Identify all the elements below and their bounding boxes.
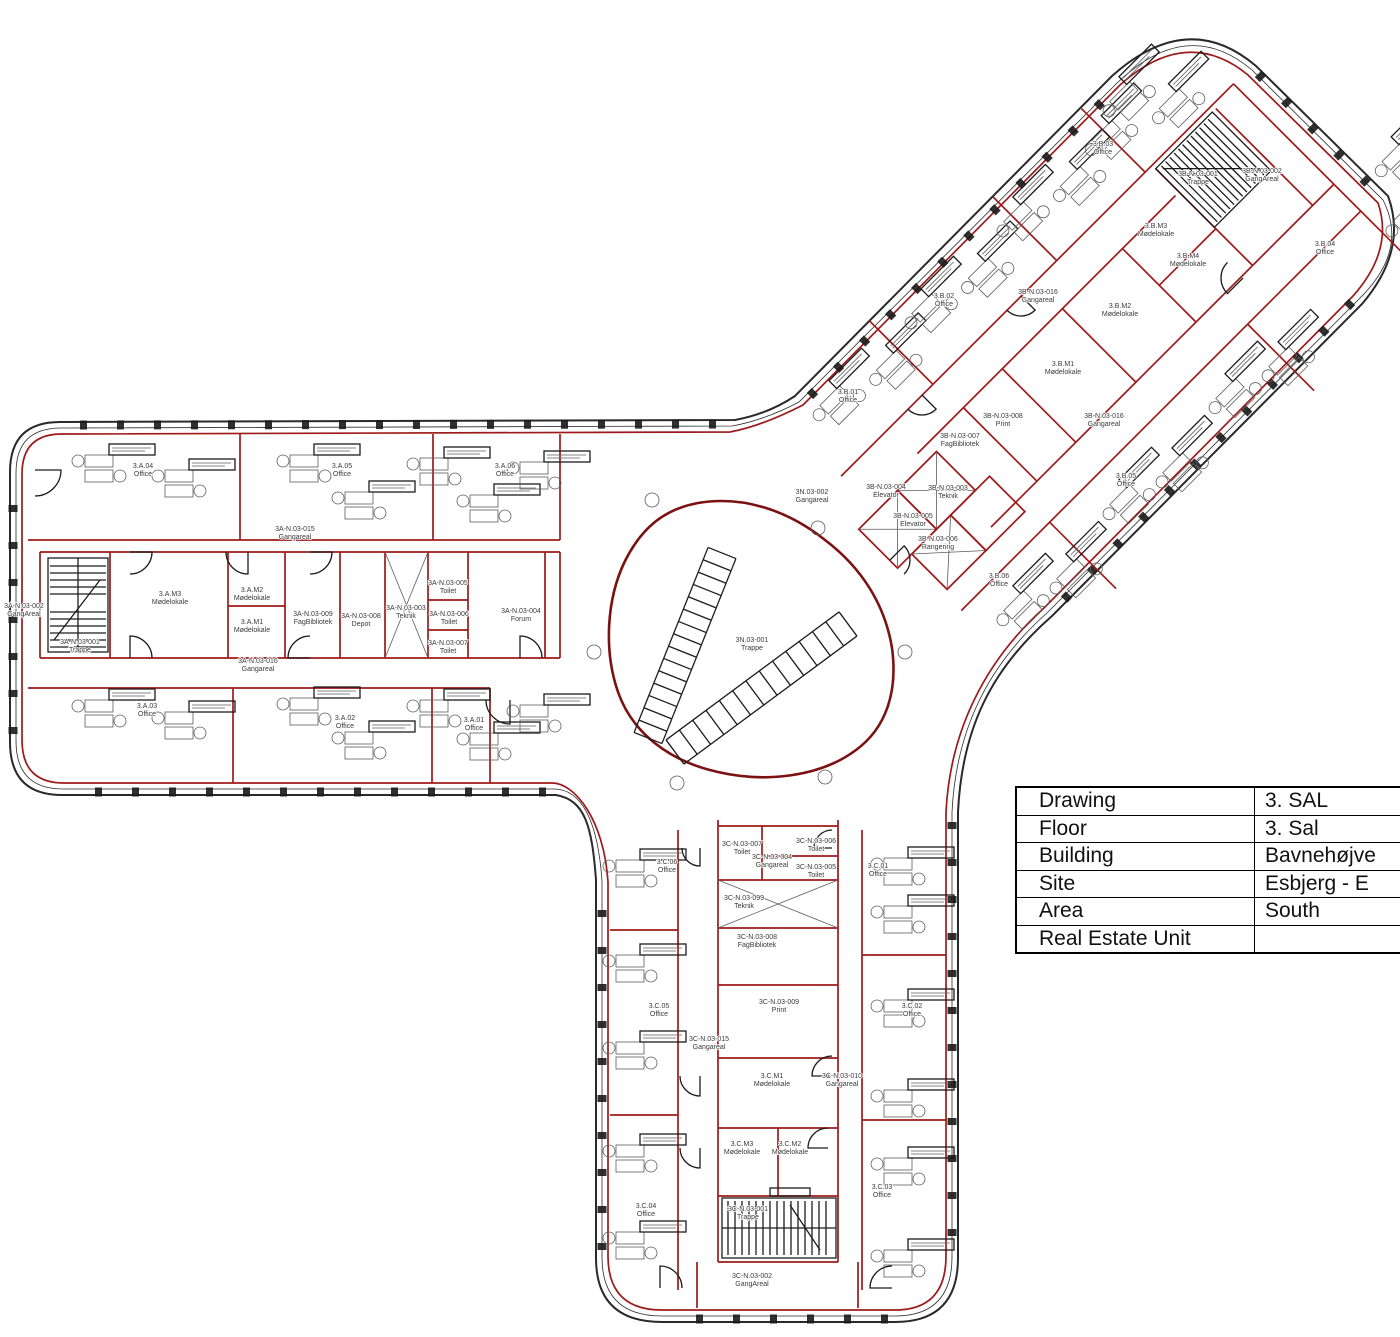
- desk: [616, 1145, 644, 1157]
- chair: [374, 507, 386, 519]
- desk: [884, 1105, 912, 1117]
- desk: [1269, 347, 1297, 375]
- floor-plan-canvas: 3.A.04Office3.A.05Office3.A.06Office3A-N…: [0, 0, 1400, 1337]
- chair: [811, 406, 828, 423]
- desk: [165, 712, 193, 724]
- equipment-tag: [1101, 83, 1141, 123]
- room-label: 3.C.M3Mødelokale: [724, 1141, 760, 1156]
- equipment-tag: [189, 459, 235, 470]
- desk: [968, 258, 996, 286]
- room-label: 3.B.06Office: [989, 573, 1009, 588]
- desk: [1060, 167, 1088, 195]
- chair: [871, 1158, 883, 1170]
- chair: [407, 700, 419, 712]
- desk-icon: [1365, 104, 1400, 190]
- title-block-row: AreaSouth: [1016, 898, 1400, 926]
- stair-landing: [770, 1188, 810, 1196]
- equipment-tag: [978, 221, 1018, 261]
- title-block-row: Drawing3. SAL: [1016, 787, 1400, 815]
- desk-icon: [871, 1239, 954, 1277]
- room-label: 3A-N.03-009FagBibliotek: [293, 611, 333, 626]
- desk-icon: [871, 1079, 954, 1117]
- desk: [887, 361, 915, 389]
- b-wing-wall: [1050, 522, 1116, 588]
- room-label: 3.A.M2Mødelokale: [234, 587, 270, 602]
- desk: [1004, 591, 1032, 619]
- chair: [867, 371, 884, 388]
- center-stair-icon: [839, 612, 857, 636]
- desk: [470, 748, 498, 760]
- chair: [194, 485, 206, 497]
- center-stair-icon: [759, 671, 777, 695]
- desk: [884, 873, 912, 885]
- chair: [1035, 592, 1052, 609]
- equipment-tag: [444, 689, 490, 700]
- chair: [603, 955, 615, 967]
- equipment-tag: [109, 689, 155, 700]
- door-arc-icon: [520, 636, 542, 658]
- desk: [85, 455, 113, 467]
- chair: [457, 733, 469, 745]
- door-arc-icon: [682, 848, 700, 866]
- chair: [913, 1105, 925, 1117]
- desk: [290, 698, 318, 710]
- title-block-row: SiteEsbjerg - E: [1016, 870, 1400, 898]
- building-outline: [10, 39, 1394, 1322]
- b-wing-wall: [841, 84, 1233, 476]
- center-stair-icon: [733, 691, 751, 715]
- chair: [457, 495, 469, 507]
- room-label: 3B-N.03-007FagBibliotek: [940, 433, 980, 448]
- chair: [407, 458, 419, 470]
- center-stair-icon: [644, 708, 672, 719]
- desk-icon: [603, 944, 686, 982]
- desk: [420, 473, 448, 485]
- chair: [871, 1250, 883, 1262]
- title-block-value-cell: Esbjerg - E: [1255, 870, 1400, 898]
- door-arc-icon: [35, 470, 61, 496]
- chair: [871, 1000, 883, 1012]
- equipment-tag: [109, 444, 155, 455]
- door-arc-icon: [680, 1148, 700, 1168]
- chair: [999, 260, 1016, 277]
- desk: [1057, 559, 1085, 587]
- room-label: 3.C.03Office: [872, 1184, 893, 1199]
- equipment-tag: [444, 447, 490, 458]
- room-label: 3.A.01Office: [464, 717, 484, 732]
- equipment-tag: [369, 721, 415, 732]
- room-label: 3A-N.03-006Toilet: [429, 611, 469, 626]
- room-label: 3C-N.03-004Gangareal: [752, 854, 792, 869]
- chair: [645, 1057, 657, 1069]
- chair: [449, 473, 461, 485]
- desk: [470, 733, 498, 745]
- center-stair-icon: [826, 622, 844, 646]
- desk-icon: [332, 481, 415, 519]
- desk: [470, 510, 498, 522]
- desk: [420, 715, 448, 727]
- room-label: 3.B.M3Mødelokale: [1138, 223, 1174, 238]
- chair: [1247, 380, 1264, 397]
- chair: [603, 1145, 615, 1157]
- room-label: 3.A.03Office: [137, 703, 157, 718]
- desk: [345, 747, 373, 759]
- desk-icon: [603, 1031, 686, 1069]
- desk: [520, 705, 548, 717]
- room-label: 3C-N.03-006Toilet: [796, 838, 836, 853]
- chair: [319, 470, 331, 482]
- room-label: 3.B.04Office: [1315, 241, 1335, 256]
- column-icon: [645, 493, 659, 507]
- title-block-value-cell: [1255, 925, 1400, 953]
- room-label: 3.A.M1Mødelokale: [234, 619, 270, 634]
- room-label: 3B-N.03-016Gangareal: [1084, 413, 1124, 428]
- desk: [1173, 464, 1201, 492]
- center-stair-icon: [799, 641, 817, 665]
- center-stair-icon: [679, 730, 697, 754]
- title-block-value-cell: South: [1255, 898, 1400, 926]
- desk: [85, 715, 113, 727]
- center-stair-icon: [674, 634, 702, 645]
- door-arc-icon: [130, 552, 152, 574]
- equipment-tag: [908, 847, 954, 858]
- center-stair-icon: [649, 695, 677, 706]
- room-label: 3.B.02Office: [934, 293, 954, 308]
- desk: [165, 727, 193, 739]
- room-label: 3.B.M2Mødelokale: [1102, 303, 1138, 318]
- center-stair-icon: [719, 701, 737, 725]
- room-label: 3N.03-001Trappe: [736, 637, 769, 652]
- door-arc-icon: [130, 636, 152, 658]
- chair: [549, 720, 561, 732]
- desk: [290, 455, 318, 467]
- door-arc-icon: [808, 1128, 828, 1148]
- room-label: 3.A.06Office: [495, 463, 515, 478]
- title-block-value-cell: Bavnehøjve: [1255, 843, 1400, 871]
- chair: [152, 470, 164, 482]
- chair: [913, 1265, 925, 1277]
- room-label: 3.B.05Office: [1116, 473, 1136, 488]
- room-label: 3A-N.03-015Gangareal: [275, 526, 315, 541]
- title-block-label-cell: Building: [1016, 843, 1255, 871]
- desk: [290, 713, 318, 725]
- chair: [1150, 109, 1167, 126]
- chair: [449, 715, 461, 727]
- equipment-tag: [544, 451, 590, 462]
- room-label: 3.B.M4Mødelokale: [1170, 253, 1206, 268]
- desk: [616, 955, 644, 967]
- equipment-tag: [908, 1147, 954, 1158]
- doors-layer: [35, 262, 1243, 1288]
- desk: [884, 1090, 912, 1102]
- desk: [470, 495, 498, 507]
- room-label: 3.A.02Office: [335, 715, 355, 730]
- desk: [884, 906, 912, 918]
- desk-icon: [457, 484, 540, 522]
- room-labels-layer: 3.A.04Office3.A.05Office3.A.06Office3A-N…: [4, 141, 1335, 1288]
- title-block-label-cell: Drawing: [1016, 787, 1255, 815]
- room-label: 3A-N.03-007Toilet: [428, 640, 468, 655]
- desk: [1014, 212, 1042, 240]
- room-label: 3C-N.03-001Trappe: [728, 1206, 768, 1221]
- chair: [72, 700, 84, 712]
- column-icon: [818, 770, 832, 784]
- center-stair-icon: [666, 612, 839, 740]
- desk: [520, 462, 548, 474]
- floor-plan-svg: 3.A.04Office3.A.05Office3.A.06Office3A-N…: [0, 0, 1400, 1337]
- desk: [884, 1250, 912, 1262]
- chair: [1101, 505, 1118, 522]
- desk: [616, 1160, 644, 1172]
- desk-icon: [603, 1134, 686, 1172]
- center-stair-icon: [706, 710, 724, 734]
- b-wing-wall: [1002, 369, 1076, 443]
- window-band: [810, 96, 1108, 396]
- door-arc-icon: [310, 552, 332, 574]
- window-band: [80, 424, 718, 425]
- equipment-tag: [189, 701, 235, 712]
- title-block-row: BuildingBavnehøjve: [1016, 843, 1400, 871]
- center-stair-icon: [786, 651, 804, 675]
- desk: [345, 507, 373, 519]
- room-label: 3B-N.03-004Elevator: [866, 484, 906, 499]
- equipment-tag: [1066, 521, 1106, 561]
- chair: [1035, 203, 1052, 220]
- room-label: 3.C.04Office: [636, 1203, 657, 1218]
- b-wing-wall: [961, 211, 1361, 611]
- desk: [290, 470, 318, 482]
- chair: [871, 1090, 883, 1102]
- room-label: 3A-N.03-005Toilet: [428, 580, 468, 595]
- room-label: 3.B.03Office: [1093, 141, 1113, 156]
- equipment-tag: [494, 722, 540, 733]
- b-wing-wall: [1216, 109, 1313, 206]
- desk: [1159, 89, 1187, 117]
- desk: [165, 470, 193, 482]
- tag-line: [1232, 353, 1255, 376]
- tag-line: [1020, 176, 1043, 199]
- room-label: 3C-N.03-010Gangareal: [822, 1073, 862, 1088]
- center-stair-icon: [703, 560, 731, 571]
- chair: [114, 715, 126, 727]
- chair: [332, 732, 344, 744]
- desk-icon: [1040, 521, 1126, 607]
- desk-icon: [407, 447, 490, 485]
- desk: [165, 485, 193, 497]
- stair-tread: [1166, 162, 1222, 218]
- desk-icon: [507, 451, 590, 489]
- center-stair-icon: [639, 720, 667, 731]
- center-stair-icon: [812, 632, 830, 656]
- desk: [345, 732, 373, 744]
- equipment-tag: [640, 1221, 686, 1232]
- chair: [959, 279, 976, 296]
- room-label: 3C-N.03-015Gangareal: [689, 1036, 729, 1051]
- room-label: 3C-N.03-002GangAreal: [732, 1273, 772, 1288]
- chair: [374, 747, 386, 759]
- desk: [616, 1042, 644, 1054]
- desk: [1110, 485, 1138, 513]
- desk-icon: [987, 553, 1073, 639]
- desk-icon: [152, 701, 235, 739]
- chair: [645, 875, 657, 887]
- desk: [922, 304, 950, 332]
- equipment-tag: [1225, 341, 1265, 381]
- chair: [194, 727, 206, 739]
- desk-icon: [1252, 309, 1338, 395]
- chair: [1091, 168, 1108, 185]
- room-label: 3C-N.03-009Print: [759, 999, 799, 1014]
- desk: [85, 700, 113, 712]
- desk: [345, 492, 373, 504]
- door-arc-icon: [890, 546, 910, 574]
- equipment-tag: [908, 895, 954, 906]
- center-stair-icon: [693, 720, 711, 744]
- desk: [420, 700, 448, 712]
- desk: [616, 1232, 644, 1244]
- chair: [72, 455, 84, 467]
- room-label: 3.B.M1Mødelokale: [1045, 361, 1081, 376]
- desk-icon: [1075, 83, 1161, 169]
- chair: [1051, 187, 1068, 204]
- desk: [1014, 601, 1042, 629]
- desk: [616, 1247, 644, 1259]
- tag-line: [1108, 95, 1131, 118]
- a-stairs-icon: [48, 558, 108, 652]
- equipment-tag: [908, 989, 954, 1000]
- title-block-value-cell: 3. SAL: [1255, 787, 1400, 815]
- equipment-tag: [1168, 51, 1208, 91]
- center-stair-icon: [678, 621, 706, 632]
- equipment-tag: [494, 484, 540, 495]
- chair: [1190, 90, 1207, 107]
- chair: [1207, 399, 1224, 416]
- chair: [277, 455, 289, 467]
- column-icon: [811, 521, 825, 535]
- outer-walls-layer: [10, 39, 1394, 1322]
- room-label: 3.C.06Office: [657, 859, 678, 874]
- chair: [913, 873, 925, 885]
- chair: [1141, 486, 1158, 503]
- room-label: 3.B.01Office: [838, 389, 858, 404]
- room-label: 3.C.01Office: [868, 863, 889, 878]
- room-label: 3N.03-002Gangareal: [796, 489, 829, 504]
- chair: [603, 1232, 615, 1244]
- room-label: 3B-N.03-016Gangareal: [1018, 289, 1058, 304]
- chair: [913, 921, 925, 933]
- desk: [1071, 177, 1099, 205]
- column-icon: [898, 645, 912, 659]
- room-label: 3B-N.03-002GangAreal: [1242, 168, 1282, 183]
- desk: [1120, 92, 1148, 120]
- equipment-tag: [640, 1134, 686, 1145]
- center-stair-icon: [669, 646, 697, 657]
- desk: [616, 970, 644, 982]
- tag-line: [1073, 534, 1096, 557]
- center-stair-icon: [659, 671, 687, 682]
- chair: [871, 906, 883, 918]
- tag-line: [1020, 565, 1043, 588]
- center-stair-icon: [634, 732, 662, 743]
- column-icon: [670, 776, 684, 790]
- equipment-tag: [1391, 104, 1400, 144]
- chair: [908, 352, 925, 369]
- desk: [884, 921, 912, 933]
- tag-line: [1179, 427, 1202, 450]
- title-block-row: Real Estate Unit: [1016, 925, 1400, 953]
- room-label: 3.C.M1Mødelokale: [754, 1073, 790, 1088]
- desk: [520, 477, 548, 489]
- chair: [499, 510, 511, 522]
- tag-line: [1396, 110, 1400, 138]
- room-label: 3B-N.03-006Rangering: [918, 536, 958, 551]
- center-stair-icon: [654, 683, 682, 694]
- title-block-label-cell: Floor: [1016, 815, 1255, 843]
- title-block-label-cell: Site: [1016, 870, 1255, 898]
- equipment-tag: [640, 944, 686, 955]
- door-arc-icon: [288, 636, 310, 658]
- center-stair-icon: [746, 681, 764, 705]
- room-label: 3A-N.03-016Gangareal: [238, 658, 278, 673]
- tag-line: [928, 268, 951, 291]
- desk-icon: [152, 459, 235, 497]
- chair: [332, 492, 344, 504]
- equipment-tag: [314, 444, 360, 455]
- desk: [420, 458, 448, 470]
- center-stair-icon: [708, 547, 736, 558]
- room-label: 3.C.05Office: [649, 1003, 670, 1018]
- chair: [603, 860, 615, 872]
- desk: [1067, 570, 1095, 598]
- room-label: 3C-N.03-005Toilet: [796, 864, 836, 879]
- chair: [994, 611, 1011, 628]
- equipment-tag: [640, 1031, 686, 1042]
- room-label: 3B-N.03-003Teknik: [928, 485, 968, 500]
- chair: [1048, 579, 1065, 596]
- desk: [979, 269, 1007, 297]
- equipment-tag: [908, 1239, 954, 1250]
- room-label: 3B-N.03-008Print: [983, 413, 1023, 428]
- title-block-table: Drawing3. SALFloor3. SalBuildingBavnehøj…: [1015, 786, 1400, 954]
- chair: [645, 1247, 657, 1259]
- room-label: 3.C.02Office: [902, 1003, 923, 1018]
- center-stair-icon: [693, 584, 721, 595]
- equipment-tag: [1278, 309, 1318, 349]
- desk-icon: [603, 1221, 686, 1259]
- center-stair-icon: [684, 636, 857, 764]
- center-stair-icon: [698, 572, 726, 583]
- room-label: 3.A.M3Mødelokale: [152, 591, 188, 606]
- room-label: 3.A.05Office: [332, 463, 352, 478]
- column-icon: [587, 645, 601, 659]
- c-stairs-icon: [722, 1188, 836, 1258]
- center-stair-icon: [688, 597, 716, 608]
- perimeter-red-wall: [22, 52, 1382, 1310]
- equipment-tag: [1172, 415, 1212, 455]
- desk-icon: [871, 1147, 954, 1185]
- stair-arrow: [54, 580, 100, 640]
- center-stair-icon: [773, 661, 791, 685]
- chair: [277, 698, 289, 710]
- chair: [645, 1160, 657, 1172]
- tag-line: [1285, 321, 1308, 344]
- desk: [884, 1158, 912, 1170]
- elevator-block-layer: [859, 451, 1025, 589]
- title-block-value-cell: 3. Sal: [1255, 815, 1400, 843]
- center-stair-icon: [664, 658, 692, 669]
- desk: [616, 1057, 644, 1069]
- chair: [499, 748, 511, 760]
